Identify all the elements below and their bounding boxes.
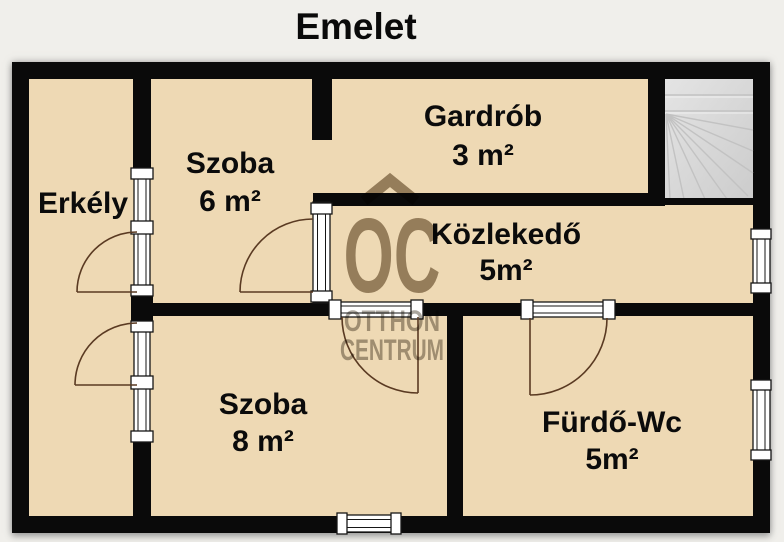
room-name: Szoba bbox=[130, 145, 330, 183]
floor-plan-page: Emelet bbox=[0, 0, 784, 542]
room-label-szoba6: Szoba 6 m² bbox=[130, 145, 330, 221]
door-frame-corridor-szoba8 bbox=[329, 300, 423, 319]
staircase bbox=[665, 79, 753, 200]
wall-balcony-junction bbox=[131, 296, 153, 321]
room-label-furdo: Fürdő-Wc 5m² bbox=[512, 404, 712, 478]
room-area: 5m² bbox=[512, 441, 712, 478]
wall-corridor-bottom-left bbox=[151, 303, 330, 316]
room-area: 5m² bbox=[406, 253, 606, 289]
wall-corridor-bottom-mid bbox=[423, 303, 523, 316]
stairs-bottom-edge bbox=[665, 198, 753, 205]
room-label-gardrob: Gardrób 3 m² bbox=[383, 97, 583, 175]
room-name: Szoba bbox=[163, 386, 363, 423]
room-label-kozlekedo: Közlekedő 5m² bbox=[406, 217, 606, 289]
wall-gardrob-bottom bbox=[313, 193, 665, 206]
wall-balcony-bottom bbox=[133, 442, 151, 516]
balcony-door-window-lower bbox=[131, 321, 153, 442]
wall-stairs-left bbox=[648, 79, 665, 206]
window-szoba8-bottom bbox=[337, 513, 401, 534]
wall-corridor-bottom-right bbox=[615, 303, 753, 316]
room-label-szoba8: Szoba 8 m² bbox=[163, 386, 363, 460]
window-corridor-right bbox=[751, 229, 771, 293]
room-area: 8 m² bbox=[163, 423, 363, 460]
room-area: 6 m² bbox=[130, 183, 330, 221]
wall-szoba8-furdo bbox=[447, 316, 463, 516]
door-frame-corridor-furdo bbox=[521, 300, 615, 319]
room-area: 3 m² bbox=[383, 136, 583, 175]
wall-szoba6-gardrob-stub bbox=[312, 79, 332, 140]
room-name: Gardrób bbox=[383, 97, 583, 136]
room-name: Közlekedő bbox=[406, 217, 606, 253]
room-name: Fürdő-Wc bbox=[512, 404, 712, 441]
window-furdo-right bbox=[751, 380, 771, 460]
